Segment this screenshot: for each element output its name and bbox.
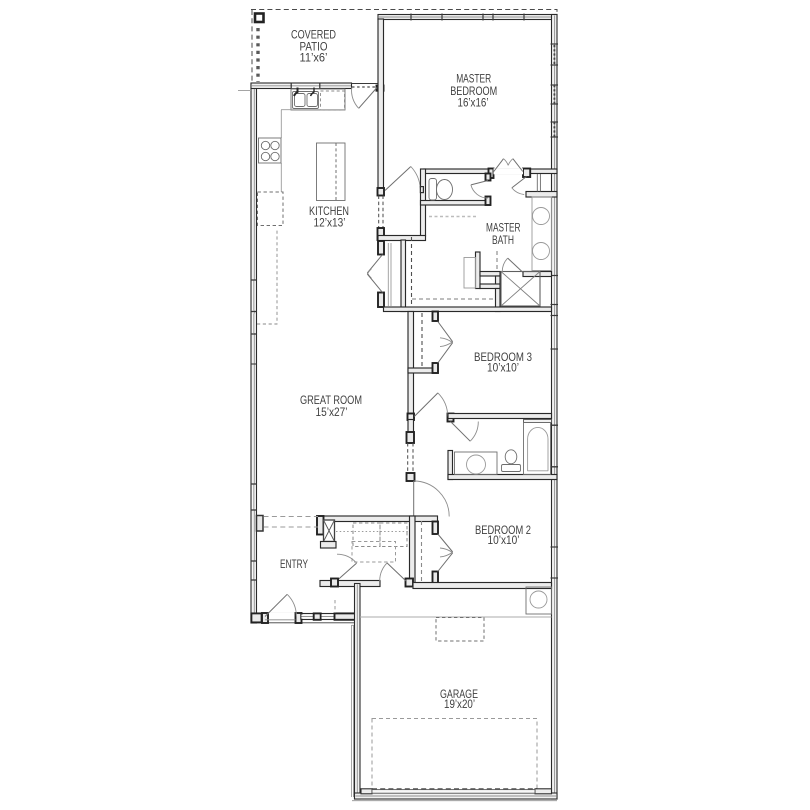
svg-text:15’x27’: 15’x27’: [316, 405, 348, 419]
svg-text:19’x20’: 19’x20’: [444, 697, 475, 711]
svg-text:10’x10’: 10’x10’: [487, 360, 519, 374]
svg-text:12’x13’: 12’x13’: [314, 216, 346, 230]
svg-text:10’x10’: 10’x10’: [488, 533, 520, 547]
svg-text:16’x16’: 16’x16’: [458, 95, 489, 109]
svg-text:BATH: BATH: [492, 233, 514, 247]
svg-text:ENTRY: ENTRY: [280, 557, 308, 571]
svg-text:11’x6’: 11’x6’: [300, 51, 328, 65]
